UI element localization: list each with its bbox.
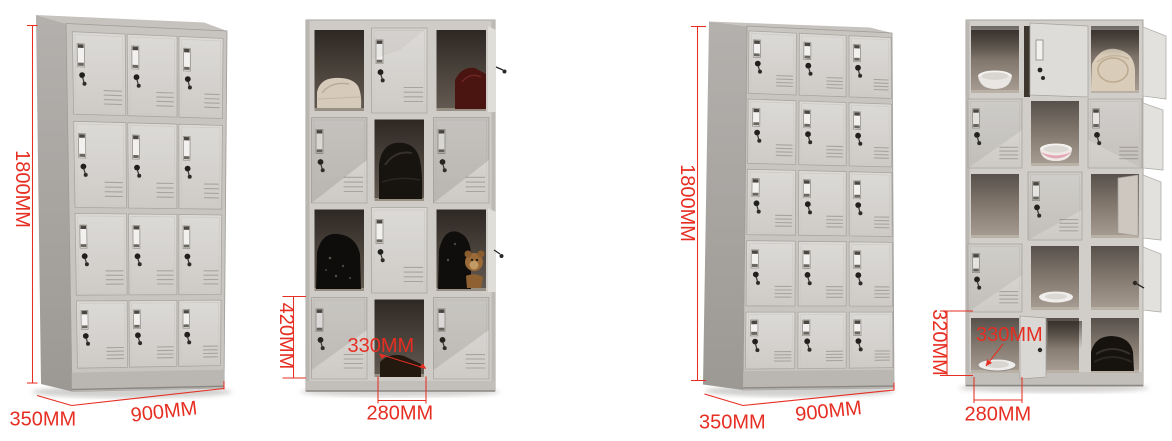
svg-text:320MM: 320MM [928, 309, 950, 376]
svg-text:1800MM: 1800MM [11, 150, 33, 228]
svg-text:330MM: 330MM [976, 324, 1043, 346]
svg-text:900MM: 900MM [794, 397, 863, 426]
svg-text:900MM: 900MM [130, 397, 199, 426]
svg-text:280MM: 280MM [367, 403, 434, 425]
svg-text:350MM: 350MM [699, 412, 766, 434]
svg-text:420MM: 420MM [275, 303, 297, 370]
svg-text:1800MM: 1800MM [676, 164, 698, 242]
svg-text:350MM: 350MM [10, 409, 77, 431]
svg-text:330MM: 330MM [348, 335, 415, 357]
svg-text:280MM: 280MM [965, 404, 1032, 426]
